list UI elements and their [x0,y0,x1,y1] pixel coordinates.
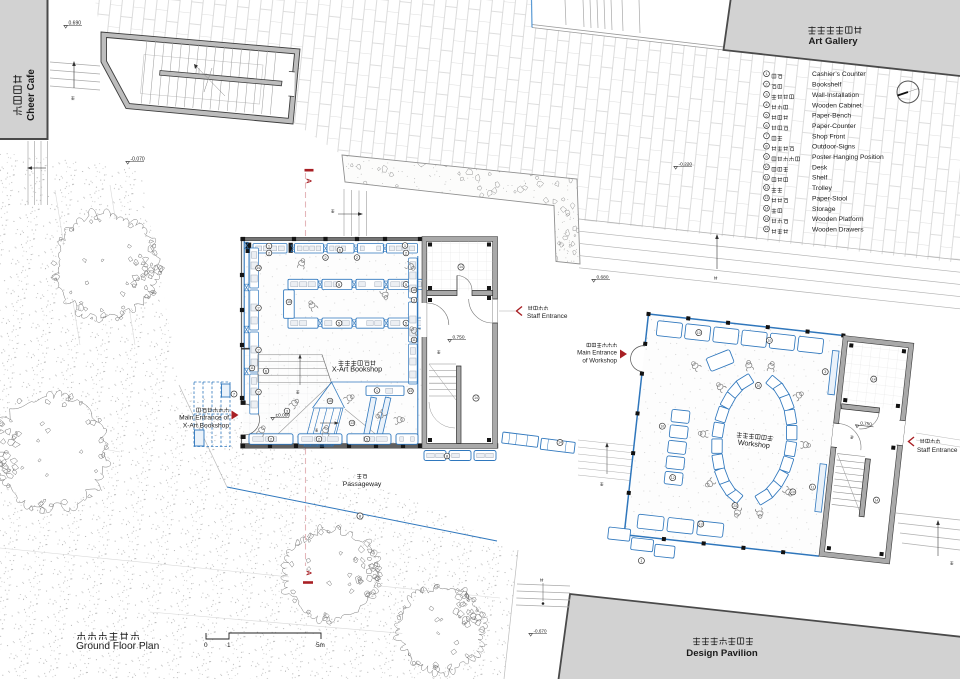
svg-text:-0.670: -0.670 [534,629,547,634]
svg-text:A: A [305,570,314,575]
svg-text:-0.220: -0.220 [679,162,693,168]
svg-text:of Workshop: of Workshop [582,358,617,365]
svg-text:X-Art Bookshop: X-Art Bookshop [183,423,230,430]
svg-text:Main Entrance of: Main Entrance of [179,415,229,422]
svg-text:11: 11 [250,366,254,370]
svg-text:14: 14 [874,498,878,502]
svg-text:10: 10 [697,331,701,335]
svg-text:0.750: 0.750 [453,335,465,341]
svg-text:Paper-Bench: Paper-Bench [812,113,851,120]
svg-text:Paper-Stool: Paper-Stool [812,195,848,202]
svg-text:12: 12 [671,476,675,480]
svg-text:11: 11 [412,338,416,342]
svg-text:Wooden Cabinet: Wooden Cabinet [812,102,862,109]
svg-text:14: 14 [474,396,478,400]
svg-text:16: 16 [257,266,261,270]
svg-text:Desk: Desk [812,164,828,171]
svg-text:0: 0 [204,642,208,649]
svg-text:Passageway: Passageway [343,481,382,488]
svg-text:Paper-Counter: Paper-Counter [812,123,857,130]
svg-text:10: 10 [660,424,664,428]
svg-text:Cashier’s Counter: Cashier’s Counter [812,71,866,78]
svg-text:13: 13 [699,522,703,526]
svg-text:13: 13 [765,196,769,200]
svg-text:5m: 5m [316,642,325,649]
svg-text:14: 14 [765,206,769,210]
svg-text:15: 15 [409,389,413,393]
svg-text:16: 16 [412,288,416,292]
svg-text:Staff Entrance: Staff Entrance [917,447,958,454]
svg-text:Design Pavilion: Design Pavilion [686,648,758,659]
svg-text:11: 11 [811,485,815,489]
svg-text:14: 14 [558,441,562,445]
svg-text:Poster Hanging Position: Poster Hanging Position [812,154,884,161]
svg-text:Ground Floor Plan: Ground Floor Plan [76,641,159,652]
svg-text:14: 14 [459,265,463,269]
svg-text:±0.000: ±0.000 [276,413,291,419]
svg-text:14: 14 [872,377,876,381]
svg-text:Bookshelf: Bookshelf [812,82,842,89]
svg-text:Cheer Cafe: Cheer Cafe [26,69,37,121]
svg-text:16: 16 [765,227,769,231]
svg-text:Art Gallery: Art Gallery [808,36,858,47]
svg-text:15: 15 [287,300,291,304]
svg-text:X-Art Bookshop: X-Art Bookshop [332,365,382,374]
svg-text:Outdoor-Signs: Outdoor-Signs [812,144,856,151]
svg-text:0.680: 0.680 [597,275,609,281]
svg-text:16: 16 [328,399,332,403]
svg-text:Wooden Drawers: Wooden Drawers [812,226,864,233]
svg-text:10: 10 [767,338,771,342]
svg-text:1: 1 [227,642,231,649]
svg-text:13: 13 [350,421,354,425]
svg-text:A: A [305,178,314,183]
svg-text:Staff Entrance: Staff Entrance [527,313,568,320]
svg-text:10: 10 [791,490,795,494]
svg-text:0.690: 0.690 [69,21,82,27]
svg-text:10: 10 [765,165,769,169]
svg-text:11: 11 [765,175,769,179]
svg-text:12: 12 [765,186,769,190]
svg-text:13: 13 [733,504,737,508]
svg-text:Wooden Platform: Wooden Platform [812,216,864,223]
svg-text:Storage: Storage [812,206,836,213]
svg-text:Main Entrance: Main Entrance [577,350,617,357]
svg-text:Trolley: Trolley [812,185,832,192]
svg-text:15: 15 [765,217,769,221]
svg-text:10: 10 [756,384,760,388]
svg-text:Shelf: Shelf [812,175,827,182]
svg-text:-0.070: -0.070 [131,157,145,163]
svg-text:Shop Front: Shop Front [812,133,845,140]
svg-text:Wall-Installation: Wall-Installation [812,92,859,99]
